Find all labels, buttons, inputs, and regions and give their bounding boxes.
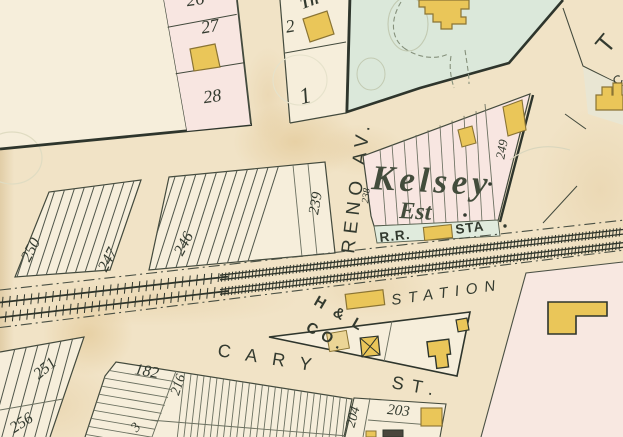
svg-text:203: 203	[386, 402, 410, 420]
svg-text:Est: Est	[398, 198, 434, 226]
svg-text:28: 28	[202, 85, 223, 107]
